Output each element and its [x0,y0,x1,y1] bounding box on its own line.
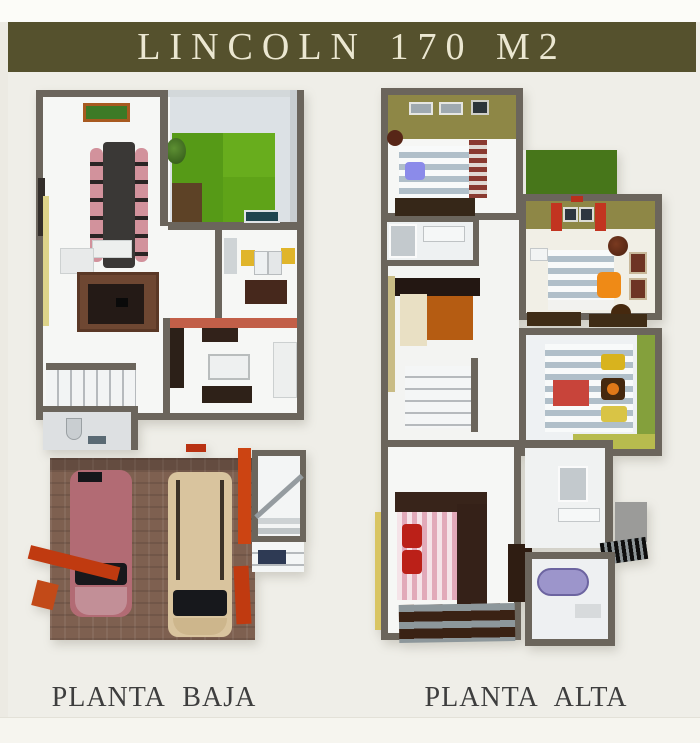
staircase-alta [405,366,471,428]
dining-plant [166,138,186,164]
tvroom-table [208,354,250,380]
wall-bath-right [131,406,138,450]
bedroom1-plant [387,130,403,146]
patio-wall-right [290,90,297,228]
living-sofa-white-top [92,240,132,258]
left-strip [0,22,8,743]
car-hood [75,587,127,615]
bbq-window [244,210,280,223]
bottom-strip [0,717,700,743]
bedroom2-window-2 [579,207,594,222]
bedroom2-frame-2 [629,278,647,300]
dining-wall-art [83,103,130,122]
bathroom3-tub-lavender [537,568,589,596]
wall-dining-right [160,90,168,226]
bedroom1-window-1 [409,102,433,115]
kitchen-fridge [254,251,268,275]
bedroom2-bed-foot [548,300,614,310]
bedroom2-plant [608,236,628,256]
bedroom3-pillow-2 [601,406,627,422]
van-rail-left [176,480,180,580]
yellow-wall-accent [43,196,49,326]
bedroom2-window-1 [563,207,578,222]
bath-mat [88,436,106,444]
kitchen-sink-counter [224,238,237,274]
toilet [66,418,82,440]
entry-step-2 [258,528,300,534]
bedroom2-pillow-orange [597,272,621,298]
kitchen-stove [268,251,282,275]
bathroom1-sink [423,226,465,242]
entry-step-1 [258,518,300,524]
bedroom2-red-frame-1 [551,203,562,231]
entry-railing [254,474,303,519]
wall-kitchen-vertical [215,230,222,320]
entry-doormat [258,550,286,564]
tvroom-sofa-dark [202,386,252,403]
family-sofa-cream [400,294,427,346]
caption-planta-baja: PLANTA BAJA [8,682,300,714]
bedroom1-pillow-blue [405,162,425,180]
family-sofa-seat [427,296,473,340]
master-pillow-2 [402,550,422,574]
floorplan-planta-alta [375,88,667,660]
entry-porch [252,450,306,542]
khaki-wall-strip [388,276,395,392]
floorplan-planta-baja [30,88,322,662]
bedroom1-window-dark [471,100,489,115]
van-windshield [173,590,227,616]
bathroom3-mat [575,604,601,618]
bedroom3-green-wall [637,335,655,449]
van-rail-right [220,480,224,580]
master-side-cabinet [457,504,487,604]
bathroom2-shower [558,466,588,502]
tvroom-armchair [202,328,238,342]
poster-title: LINCOLN 170 M2 [137,25,567,69]
bedroom3-stool [601,378,625,400]
entry-red-wall [238,448,251,544]
roof-green-patch [523,150,617,196]
bedroom2-nightstand [530,248,548,261]
roof-gray-block [615,502,647,542]
bedroom3-rug-red [553,380,589,406]
van-beige [168,472,232,637]
wall-kitchen-horizontal [168,222,297,230]
kitchen-counter-yellow-right [281,248,295,264]
dining-chairs-right [135,148,148,262]
kitchen-counter-yellow-left [241,250,255,266]
title-banner: LINCOLN 170 M2 [8,22,696,72]
closet-bar-2 [589,314,647,327]
tvroom-media-unit [170,328,184,388]
closet-bar-1 [527,312,581,326]
van-hood [173,618,227,635]
bedroom1-window-2 [439,102,463,115]
caption-planta-alta: PLANTA ALTA [380,682,672,714]
tvroom-wall-salmon [170,318,297,328]
master-pillow-1 [402,524,422,548]
tvroom-sofa-white [273,342,297,398]
living-tv [116,298,128,307]
wall-tvroom-left [163,318,170,420]
patio-wall-top [168,90,297,97]
bedroom2-frame-1 [629,252,647,274]
bathroom1-shower [389,224,417,258]
car-pink [70,470,132,617]
bedroom3-pillow-1 [601,354,625,370]
grass-light-patch [223,133,275,177]
kitchen-cabinet-dark [245,280,287,304]
top-strip [0,0,700,22]
garage-shadow [50,458,255,470]
living-sofa-white-left [60,248,94,274]
red-bar-top [186,444,206,452]
wall-stairs-top [46,363,136,370]
soil-patch [172,183,202,223]
car-sunroof [78,472,102,482]
bedroom3-stool-cushion [607,383,619,395]
poster: LINCOLN 170 M2 [0,0,700,743]
wall-stairs-right-alta [471,358,478,432]
planter-red-right [233,566,251,625]
bathroom-floor-baja [43,412,131,450]
bathroom3-outline [525,552,615,646]
master-deck [399,603,516,643]
staircase-baja [46,370,136,406]
bedroom2-red-dash [571,196,583,202]
bedroom1-closet [395,198,475,216]
bedroom1-brick-accent [469,140,487,198]
bedroom2-red-frame-2 [595,203,606,231]
wall-bathroom2-right [605,448,613,552]
bathroom2-counter [558,508,600,522]
wall-bathroom2-top [521,440,613,448]
